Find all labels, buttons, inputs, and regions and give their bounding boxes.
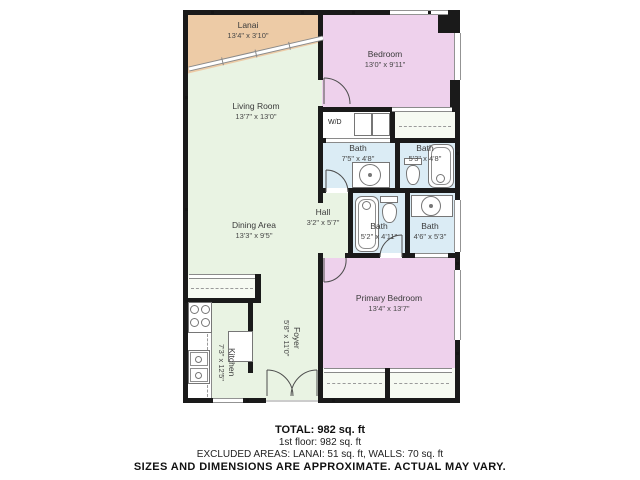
burner-icon <box>201 318 210 327</box>
dimension-tick <box>352 11 355 14</box>
closet-rail <box>327 383 382 384</box>
sliding-door <box>390 368 452 373</box>
sliding-door <box>392 107 452 112</box>
sink-drain-icon <box>195 372 202 379</box>
dimension-tick <box>211 11 214 14</box>
sliding-door <box>189 274 255 279</box>
sink-drain-icon <box>429 204 433 208</box>
sink-drain-icon <box>368 173 372 177</box>
window <box>390 10 448 15</box>
toilet-icon <box>380 196 398 203</box>
wall <box>448 253 460 258</box>
tub-drain-icon <box>436 174 445 183</box>
dimension-tick <box>456 352 459 355</box>
burner-icon <box>190 318 199 327</box>
wall <box>402 253 415 258</box>
wall <box>318 398 460 403</box>
plan-summary: TOTAL: 982 sq. ft 1st floor: 982 sq. ft … <box>0 424 640 473</box>
room-label-foyer: Foyer 5'8" x 11'0" <box>281 298 302 378</box>
closet-rail <box>399 126 451 127</box>
room-label-bath-b: Bath 5'3" x 4'8" <box>392 143 458 164</box>
summary-excluded-areas: EXCLUDED AREAS: LANAI: 51 sq. ft, WALLS:… <box>0 449 640 460</box>
tub-drain-icon <box>362 201 371 210</box>
burner-icon <box>190 305 199 314</box>
wall <box>318 188 326 193</box>
bedroom-closet-fill <box>392 112 455 138</box>
toilet-icon <box>382 203 397 223</box>
window <box>454 33 461 80</box>
wall <box>345 253 380 258</box>
dimension-tick <box>456 262 459 265</box>
dimension-tick <box>185 208 188 211</box>
dimension-tick <box>185 96 188 99</box>
summary-disclaimer: SIZES AND DIMENSIONS ARE APPROXIMATE. AC… <box>0 461 640 473</box>
wall <box>318 253 323 258</box>
room-label-lanai: Lanai 13'4" x 3'10" <box>198 20 298 41</box>
floor-plan-page: { "floor_plan": { "colors": { "lanai": "… <box>0 0 640 480</box>
wall <box>452 107 460 112</box>
wall <box>390 110 395 143</box>
room-label-laundry: W/D <box>328 119 342 126</box>
room-label-bath-d: Bath 4'6" x 5'3" <box>398 221 462 242</box>
washer-dryer-icon <box>372 113 390 136</box>
wall <box>255 274 261 303</box>
closet-rail <box>191 288 253 289</box>
wall <box>318 13 323 80</box>
washer-dryer-icon <box>354 113 372 136</box>
dimension-tick <box>301 11 304 14</box>
toilet-icon <box>406 165 420 185</box>
burner-icon <box>201 305 210 314</box>
room-label-bath-a: Bath 7'5" x 4'8" <box>322 143 394 164</box>
dimension-tick <box>428 11 431 14</box>
dimension-tick <box>246 399 249 402</box>
room-label-bedroom: Bedroom 13'0" x 9'11" <box>335 49 435 70</box>
closet-rail <box>394 383 449 384</box>
room-label-primary-bedroom: Primary Bedroom 13'4" x 13'7" <box>324 293 454 314</box>
window <box>454 270 461 340</box>
summary-first-floor: 1st floor: 982 sq. ft <box>0 437 640 448</box>
wall <box>348 188 400 193</box>
dimension-tick <box>332 399 335 402</box>
wall <box>318 107 392 112</box>
counter-edge <box>207 385 208 397</box>
wall <box>318 258 323 398</box>
sink-drain-icon <box>195 356 202 363</box>
floor-plan: Lanai 13'4" x 3'10" Bedroom 13'0" x 9'11… <box>0 0 640 480</box>
counter-edge <box>207 334 208 350</box>
dimension-tick <box>185 300 188 303</box>
room-label-kitchen: Kitchen 7'3" x 12'5" <box>216 322 237 402</box>
room-label-living-room: Living Room 13'7" x 13'0" <box>206 101 306 122</box>
summary-total: TOTAL: 982 sq. ft <box>0 424 640 436</box>
sliding-door <box>324 368 385 373</box>
pocket-door <box>415 253 448 258</box>
